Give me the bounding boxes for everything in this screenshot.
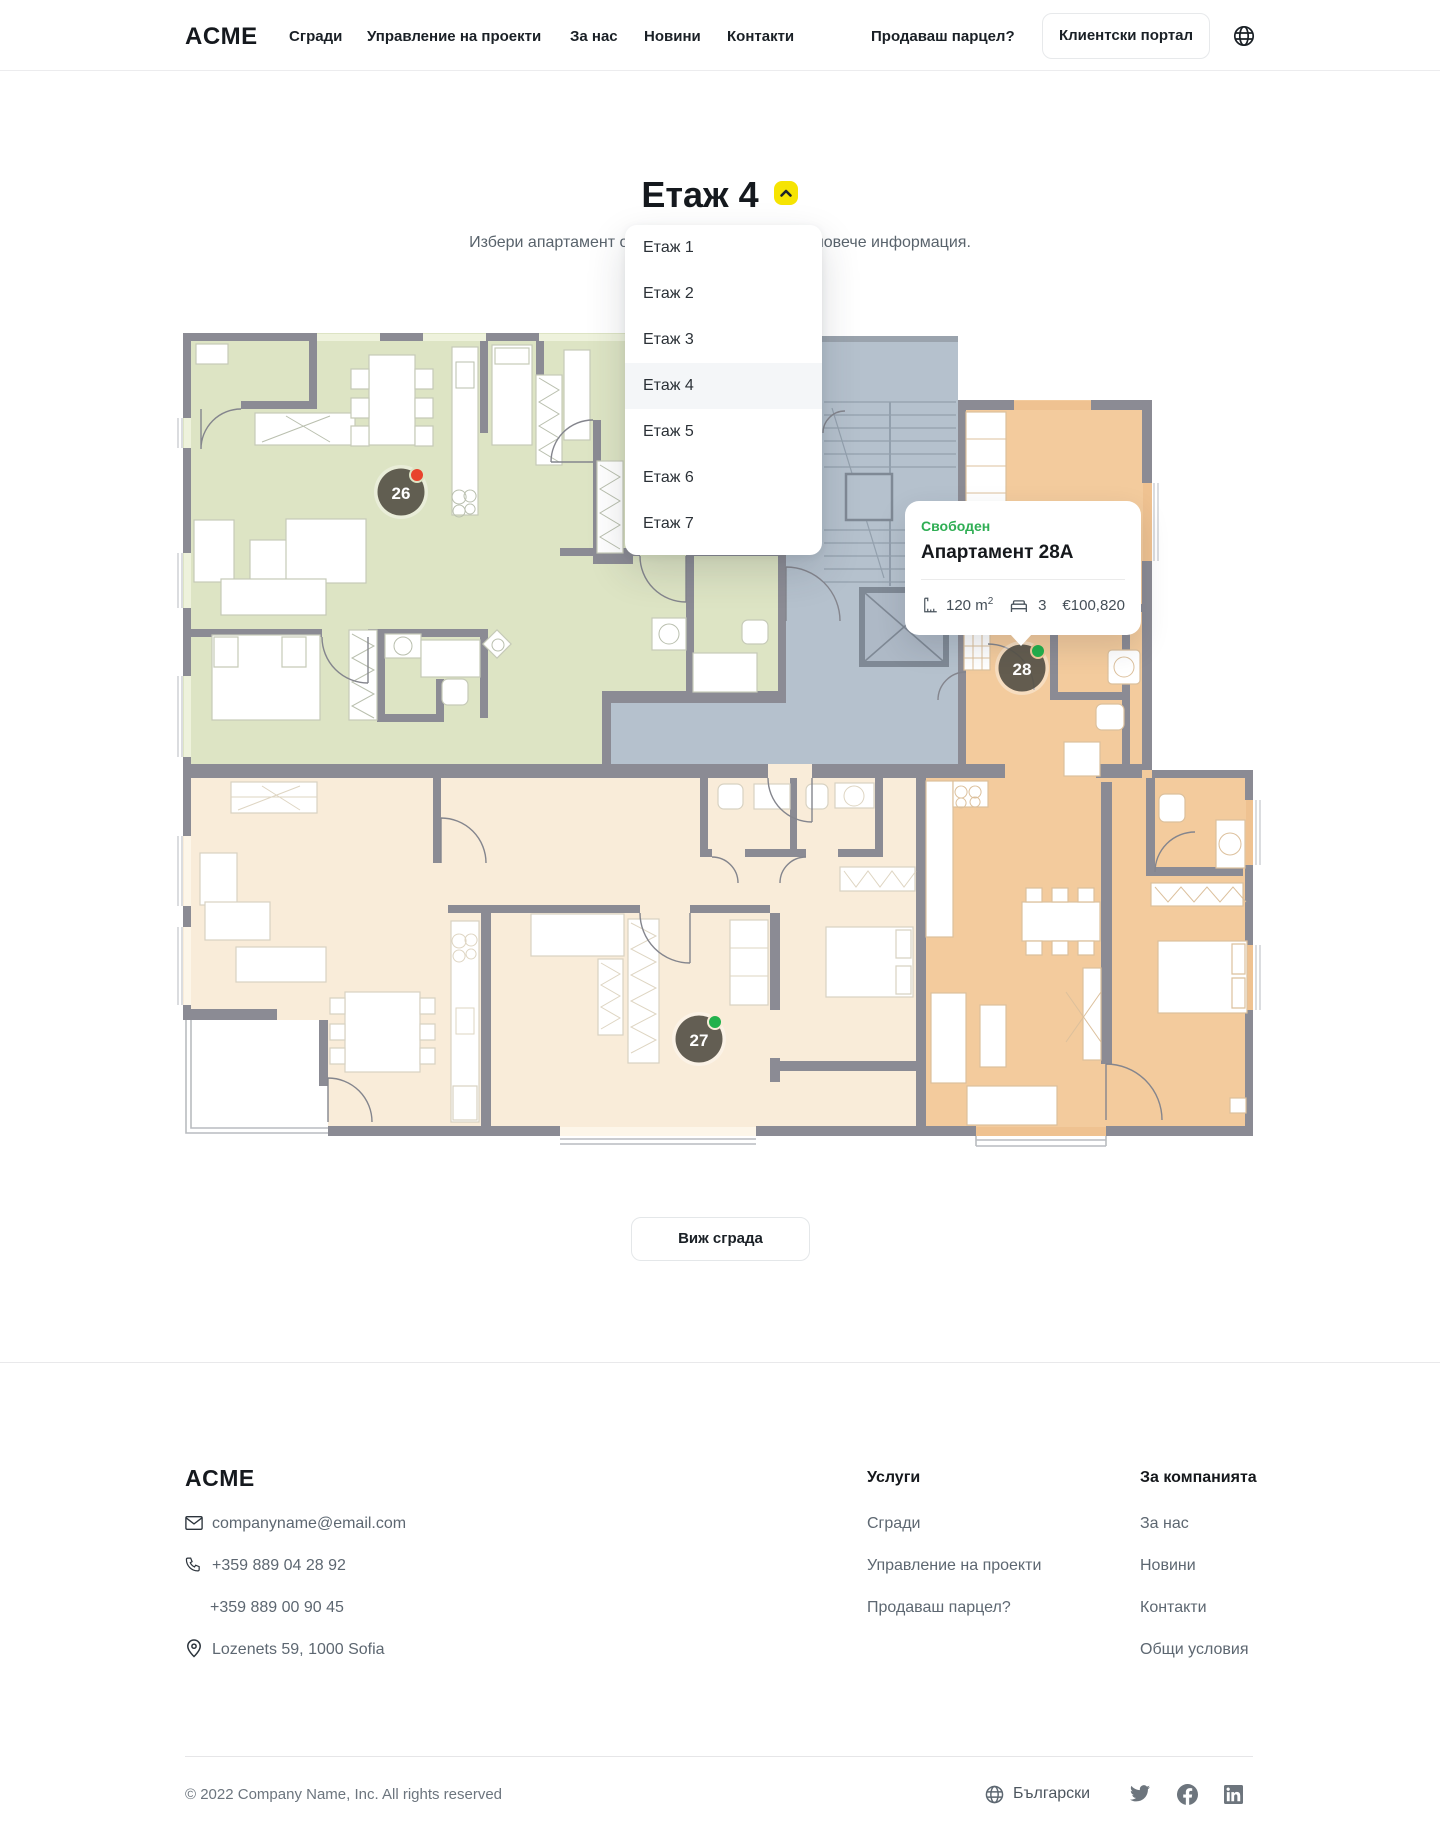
svg-text:28: 28 bbox=[1013, 660, 1032, 679]
svg-text:26: 26 bbox=[392, 484, 411, 503]
svg-text:27: 27 bbox=[690, 1031, 709, 1050]
